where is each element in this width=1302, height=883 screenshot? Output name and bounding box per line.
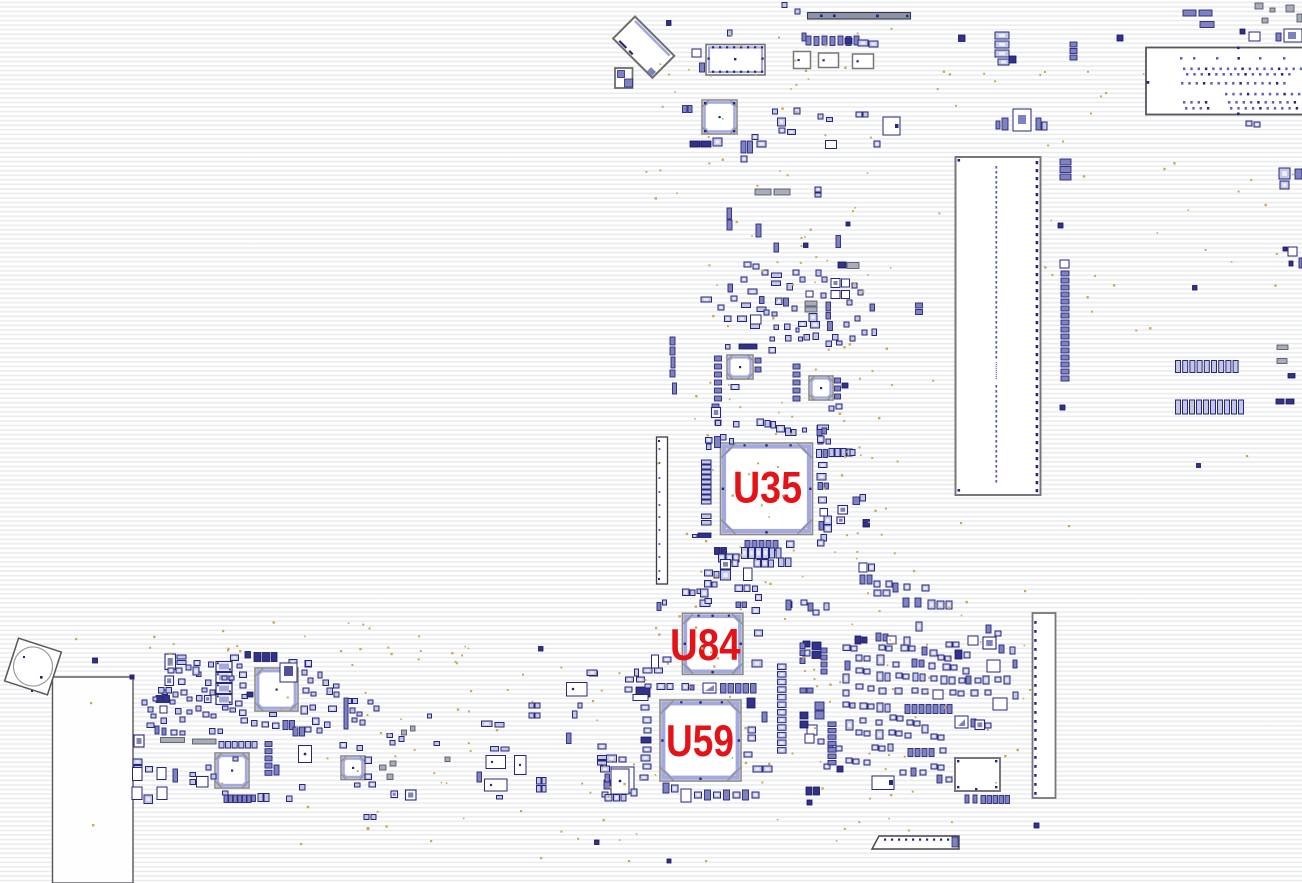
svg-text:U59: U59 <box>666 717 734 766</box>
svg-text:U84: U84 <box>670 621 741 670</box>
svg-text:U35: U35 <box>733 464 802 513</box>
